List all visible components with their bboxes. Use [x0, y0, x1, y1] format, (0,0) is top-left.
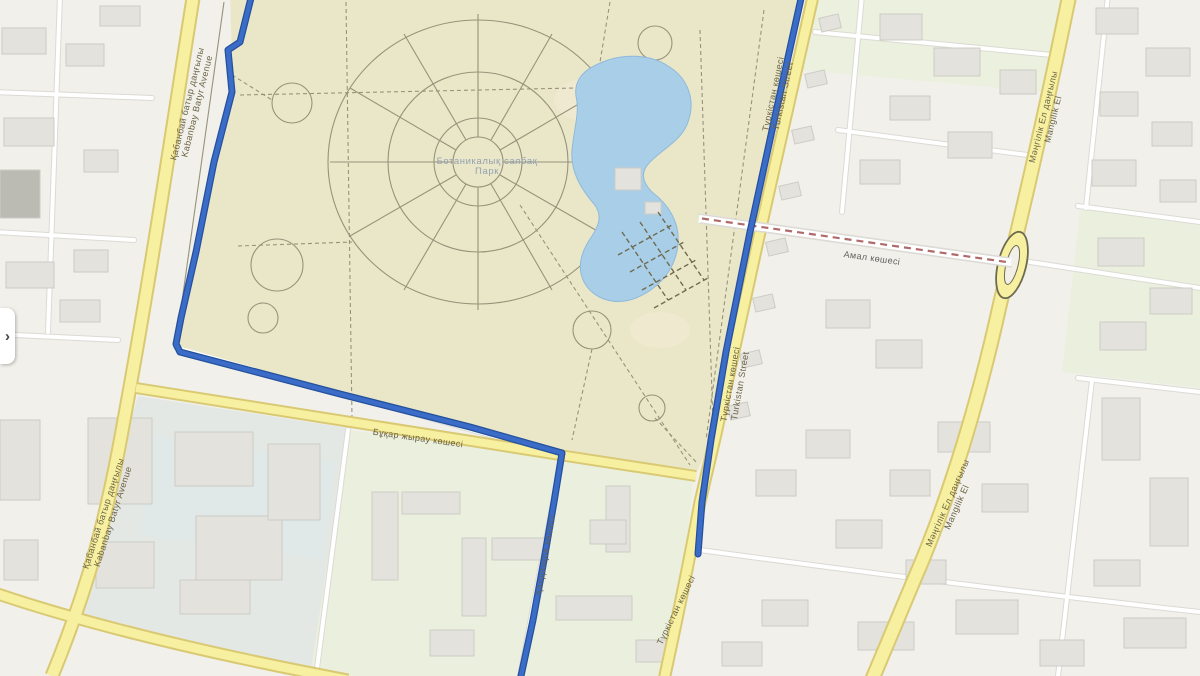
map-canvas[interactable]: Ботаникалық саябақ Парк Қабанбай батыр д… [0, 0, 1200, 676]
park-area [178, 0, 798, 470]
sand-patch [630, 312, 690, 348]
chevron-right-icon: › [5, 328, 10, 345]
park-polygon [178, 0, 798, 470]
map-layers [0, 0, 1200, 676]
expand-panel-button[interactable]: › [0, 308, 15, 364]
